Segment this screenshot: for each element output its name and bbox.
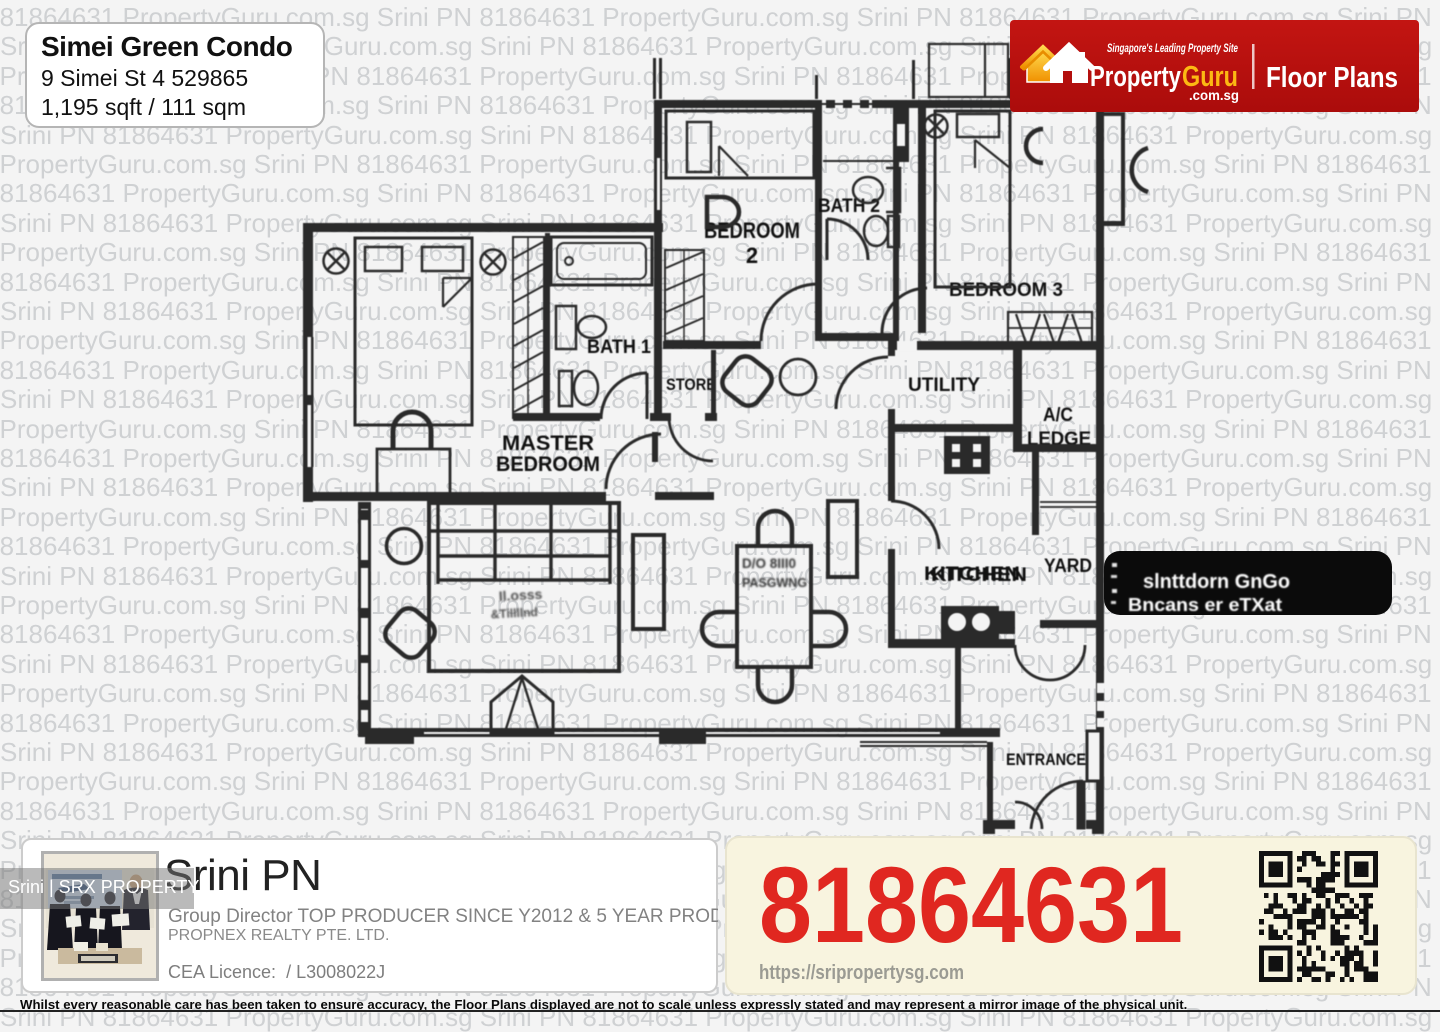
svg-text:BEDROOM 3: BEDROOM 3 <box>949 280 1063 301</box>
svg-text:Il.osss: Il.osss <box>498 586 543 604</box>
svg-text:STORE: STORE <box>666 375 716 394</box>
svg-text:KITCHEN: KITCHEN <box>931 565 1027 586</box>
svg-text:Bncans er eTXat: Bncans er eTXat <box>1128 595 1282 615</box>
svg-text:ENTRANCE: ENTRANCE <box>1006 750 1086 769</box>
svg-text:https://sripropertysg.com: https://sripropertysg.com <box>759 962 964 984</box>
svg-text:Singapore's Leading Property S: Singapore's Leading Property Site <box>1107 43 1238 55</box>
svg-text:MASTER: MASTER <box>502 432 594 455</box>
svg-text:Property: Property <box>1090 61 1181 93</box>
svg-text:81864631: 81864631 <box>759 844 1183 965</box>
svg-text:BEDROOM: BEDROOM <box>496 453 600 476</box>
svg-text:.com.sg: .com.sg <box>1189 87 1239 103</box>
svg-text:Floor Plans: Floor Plans <box>1266 62 1398 94</box>
svg-text:PASGWNG: PASGWNG <box>742 576 807 590</box>
svg-text:&Tillllnd: &Tillllnd <box>490 605 538 621</box>
svg-text:YARD: YARD <box>1044 556 1092 577</box>
svg-text:2: 2 <box>746 243 758 268</box>
svg-text:slnttdorn GnGo: slnttdorn GnGo <box>1143 571 1290 593</box>
svg-text:BATH 1: BATH 1 <box>587 337 651 358</box>
svg-text:BEDROOM: BEDROOM <box>704 218 800 243</box>
svg-text:A/C: A/C <box>1043 405 1073 426</box>
svg-text:D/O 8III0: D/O 8III0 <box>742 556 796 571</box>
svg-text:BATH 2: BATH 2 <box>818 196 880 217</box>
svg-text:UTILITY: UTILITY <box>908 375 980 396</box>
